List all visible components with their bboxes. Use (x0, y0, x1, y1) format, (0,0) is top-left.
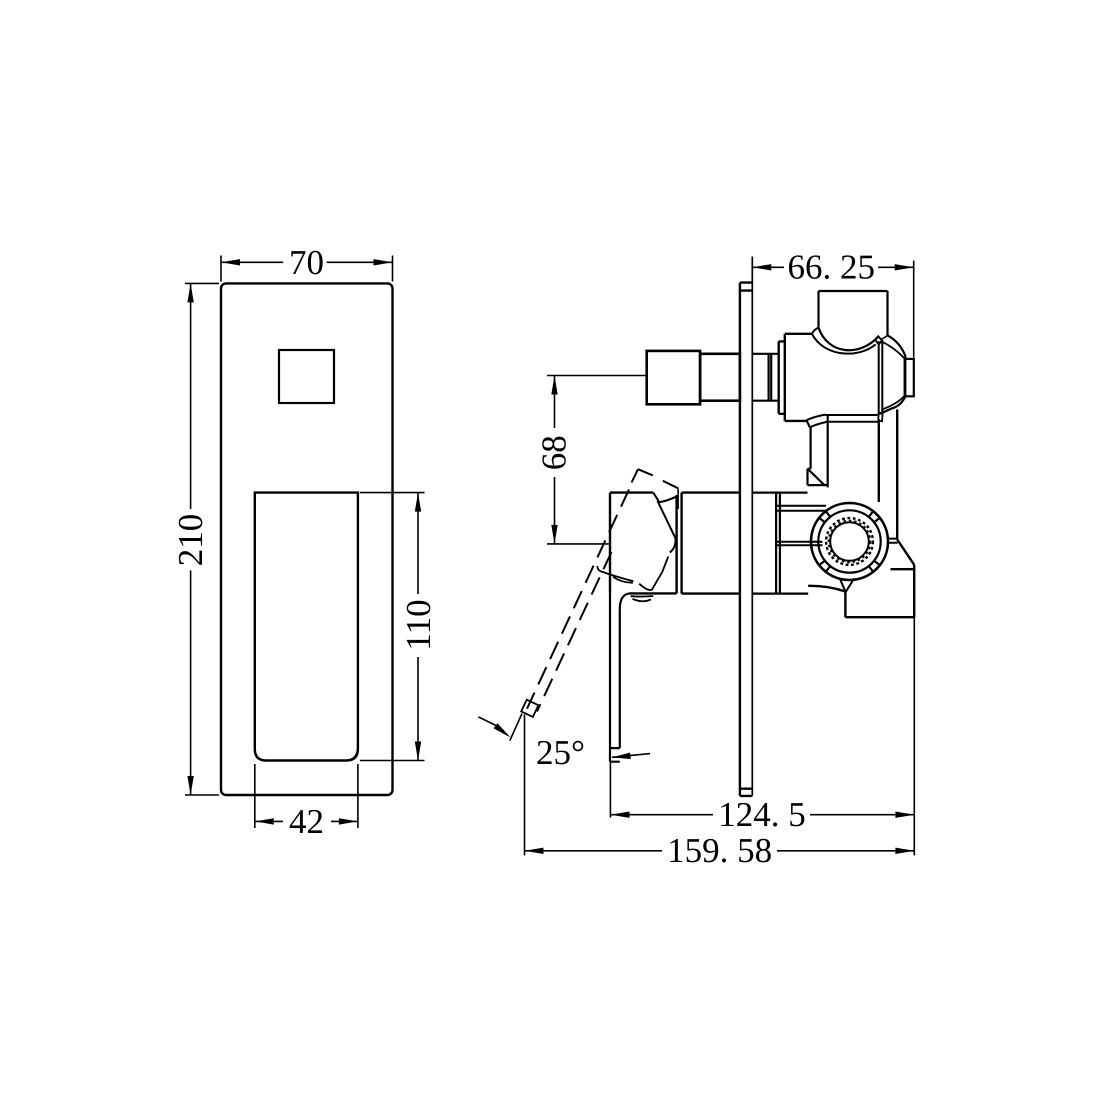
svg-text:210: 210 (171, 514, 210, 567)
svg-text:68: 68 (534, 435, 573, 470)
svg-text:159. 58: 159. 58 (667, 831, 772, 870)
svg-text:110: 110 (399, 599, 438, 650)
svg-text:124. 5: 124. 5 (718, 795, 806, 834)
svg-text:25°: 25° (536, 733, 585, 772)
svg-text:66. 25: 66. 25 (788, 247, 876, 286)
svg-text:42: 42 (289, 802, 324, 841)
svg-text:70: 70 (289, 243, 324, 282)
